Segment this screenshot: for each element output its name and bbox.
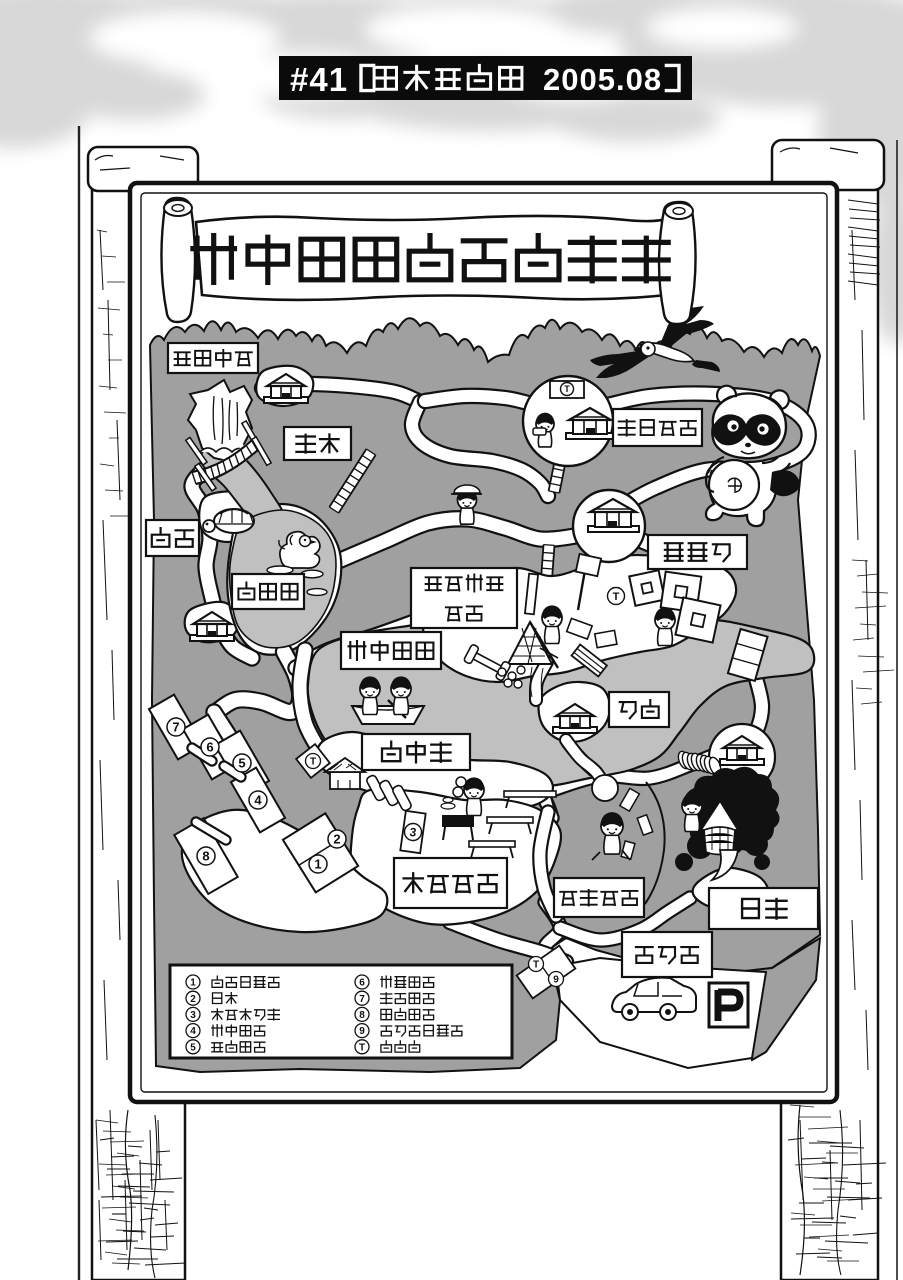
svg-text:6: 6 xyxy=(206,740,213,755)
svg-text:1: 1 xyxy=(190,978,196,989)
svg-text:T: T xyxy=(310,757,316,768)
svg-text:8: 8 xyxy=(359,1010,365,1021)
svg-text:1: 1 xyxy=(314,857,321,872)
svg-text:4: 4 xyxy=(254,793,262,808)
svg-text:5: 5 xyxy=(238,756,245,771)
svg-text:T: T xyxy=(533,960,539,971)
svg-text:9: 9 xyxy=(359,1026,365,1037)
svg-text:T: T xyxy=(613,591,620,603)
svg-text:7: 7 xyxy=(172,720,179,735)
svg-text:4: 4 xyxy=(190,1026,196,1037)
svg-text:6: 6 xyxy=(359,978,365,989)
svg-text:2: 2 xyxy=(190,994,196,1005)
svg-text:2005.08: 2005.08 xyxy=(543,62,662,97)
svg-text:T: T xyxy=(359,1042,365,1053)
svg-text:8: 8 xyxy=(202,849,209,864)
svg-text:#41: #41 xyxy=(290,61,348,98)
svg-text:7: 7 xyxy=(359,994,365,1005)
svg-text:T: T xyxy=(564,384,570,394)
svg-text:5: 5 xyxy=(190,1042,196,1053)
svg-text:9: 9 xyxy=(553,975,559,986)
svg-text:2: 2 xyxy=(333,832,340,847)
svg-text:3: 3 xyxy=(190,1010,196,1021)
